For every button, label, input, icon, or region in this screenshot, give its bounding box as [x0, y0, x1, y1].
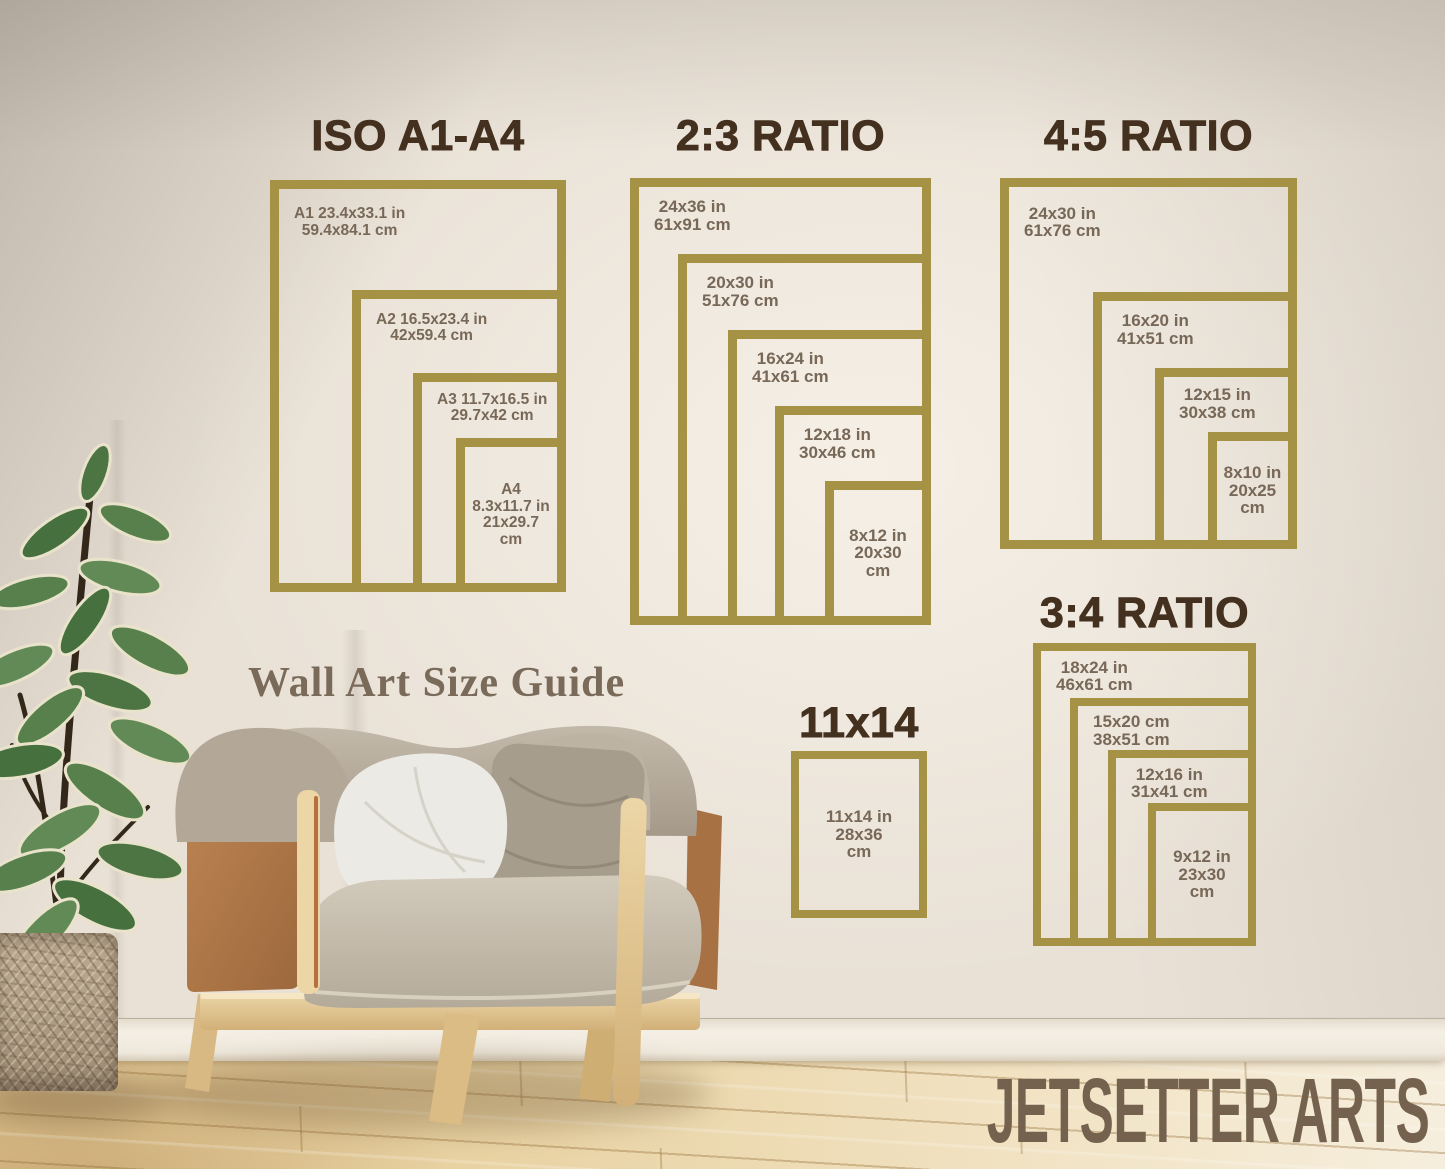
size-label-line: 61x91 cm: [654, 216, 731, 234]
size-label-line: A1 23.4x33.1 in: [294, 206, 405, 223]
size-label-line: cm: [500, 532, 522, 549]
panel-title-3-4-ratio: 3:4 RATIO: [993, 591, 1296, 636]
size-label-line: 20x30: [854, 544, 901, 562]
size-label-line: cm: [847, 843, 872, 861]
size-label-line: 11x14 in: [826, 808, 892, 826]
size-label: A3 11.7x16.5 in29.7x42 cm: [437, 392, 547, 425]
size-label-line: 12x16 in: [1131, 766, 1208, 784]
size-label-line: cm: [1190, 883, 1215, 901]
size-label-line: A2 16.5x23.4 in: [376, 312, 487, 329]
size-label-line: 12x18 in: [799, 426, 876, 444]
size-label: 12x15 in30x38 cm: [1179, 386, 1256, 421]
size-label-line: 16x24 in: [752, 350, 829, 368]
size-label-line: 8x12 in: [849, 527, 907, 545]
size-label: 8x10 in20x25cm: [1217, 441, 1288, 540]
size-label-line: 8.3x11.7 in: [472, 499, 550, 516]
size-guide-panel-4-5: 24x30 in61x76 cm16x20 in41x51 cm12x15 in…: [1000, 178, 1297, 549]
size-guide-panel-3-4: 18x24 in46x61 cm15x20 cm38x51 cm12x16 in…: [1033, 643, 1256, 946]
size-label-line: 30x38 cm: [1179, 404, 1256, 422]
size-label-line: A3 11.7x16.5 in: [437, 392, 547, 409]
panel-title-4-5-ratio: 4:5 RATIO: [960, 114, 1337, 159]
size-label-line: 31x41 cm: [1131, 783, 1208, 801]
size-label: 16x24 in41x61 cm: [752, 350, 829, 385]
size-label-line: 41x61 cm: [752, 368, 829, 386]
size-label: 12x16 in31x41 cm: [1131, 766, 1208, 801]
panel-title-2-3-ratio: 2:3 RATIO: [590, 114, 971, 159]
size-guide-panel-2-3: 24x36 in61x91 cm20x30 in51x76 cm16x24 in…: [630, 178, 931, 625]
size-label-line: 38x51 cm: [1093, 731, 1170, 749]
size-label: 18x24 in46x61 cm: [1056, 659, 1133, 694]
size-label-line: 59.4x84.1 cm: [294, 223, 405, 240]
size-label-line: 20x30 in: [702, 274, 779, 292]
size-label: 12x18 in30x46 cm: [799, 426, 876, 461]
size-label: 9x12 in23x30cm: [1156, 811, 1248, 938]
size-label-line: 30x46 cm: [799, 444, 876, 462]
size-label-line: 20x25: [1229, 482, 1276, 500]
size-label-line: 8x10 in: [1224, 464, 1282, 482]
size-label: A48.3x11.7 in21x29.7cm: [465, 447, 557, 583]
size-label: A1 23.4x33.1 in59.4x84.1 cm: [294, 206, 405, 239]
size-label: 8x12 in20x30cm: [834, 490, 922, 616]
size-label: 24x30 in61x76 cm: [1024, 205, 1101, 240]
size-label-line: cm: [866, 562, 891, 580]
size-label-line: 21x29.7: [483, 515, 539, 532]
size-label-line: 46x61 cm: [1056, 676, 1133, 694]
size-label-line: 42x59.4 cm: [376, 328, 487, 345]
size-label-line: 41x51 cm: [1117, 330, 1194, 348]
size-label: 15x20 cm38x51 cm: [1093, 713, 1170, 748]
size-label: 24x36 in61x91 cm: [654, 198, 731, 233]
size-guide-panel-11x14: 11x14 in28x36cm: [791, 751, 927, 918]
size-label-line: 12x15 in: [1179, 386, 1256, 404]
size-label: 11x14 in28x36cm: [799, 759, 919, 910]
room-scene: ISO A1-A4 2:3 RATIO 4:5 RATIO 3:4 RATIO …: [0, 0, 1445, 1169]
wall-art-size-guide-caption: Wall Art Size Guide: [248, 660, 625, 706]
woven-basket-planter: [0, 933, 118, 1091]
size-label-line: 23x30: [1178, 866, 1225, 884]
armchair-image: [165, 712, 740, 1132]
size-label-line: cm: [1240, 499, 1265, 517]
size-label-line: 29.7x42 cm: [437, 408, 547, 425]
size-label-line: 24x30 in: [1024, 205, 1101, 223]
size-label-line: 16x20 in: [1117, 312, 1194, 330]
size-guide-panel-iso: A1 23.4x33.1 in59.4x84.1 cmA2 16.5x23.4 …: [270, 180, 566, 592]
brand-watermark: JETSETTER ARTS: [986, 1065, 1429, 1157]
size-label: A2 16.5x23.4 in42x59.4 cm: [376, 312, 487, 345]
size-label-line: A4: [501, 482, 521, 499]
size-label: 20x30 in51x76 cm: [702, 274, 779, 309]
size-label-line: 18x24 in: [1056, 659, 1133, 677]
size-label-line: 9x12 in: [1173, 848, 1231, 866]
panel-title-iso-a1-a4: ISO A1-A4: [230, 114, 606, 159]
size-label: 16x20 in41x51 cm: [1117, 312, 1194, 347]
panel-title-11x14: 11x14: [751, 701, 967, 746]
size-label-line: 15x20 cm: [1093, 713, 1170, 731]
size-label-line: 28x36: [835, 826, 882, 844]
size-label-line: 61x76 cm: [1024, 222, 1101, 240]
size-label-line: 24x36 in: [654, 198, 731, 216]
size-label-line: 51x76 cm: [702, 292, 779, 310]
